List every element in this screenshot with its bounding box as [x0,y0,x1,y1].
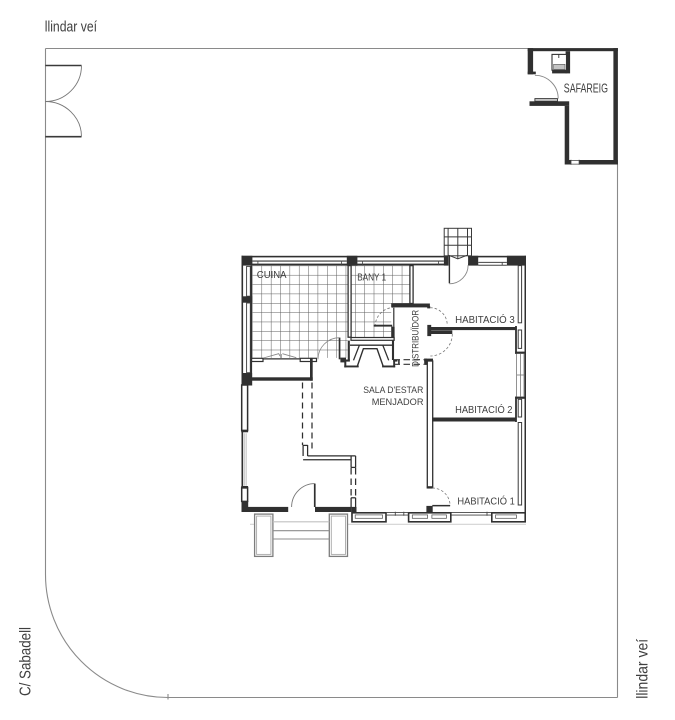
svg-text:HABITACIÓ 2: HABITACIÓ 2 [455,403,513,416]
svg-text:HABITACIÓ 1: HABITACIÓ 1 [457,494,515,507]
svg-text:llindar veí: llindar veí [635,638,652,699]
svg-text:SALA D'ESTAR: SALA D'ESTAR [363,385,423,396]
svg-text:llindar veí: llindar veí [45,19,97,35]
svg-text:CUINA: CUINA [257,270,287,281]
svg-text:SAFAREIG: SAFAREIG [564,80,608,95]
svg-text:DISTRIBUÏDOR: DISTRIBUÏDOR [411,310,421,367]
svg-text:MENJADOR: MENJADOR [372,397,424,408]
svg-text:C/ Sabadell: C/ Sabadell [18,627,35,696]
svg-text:HABITACIÓ 3: HABITACIÓ 3 [455,313,515,326]
svg-text:BANY 1: BANY 1 [357,273,386,284]
